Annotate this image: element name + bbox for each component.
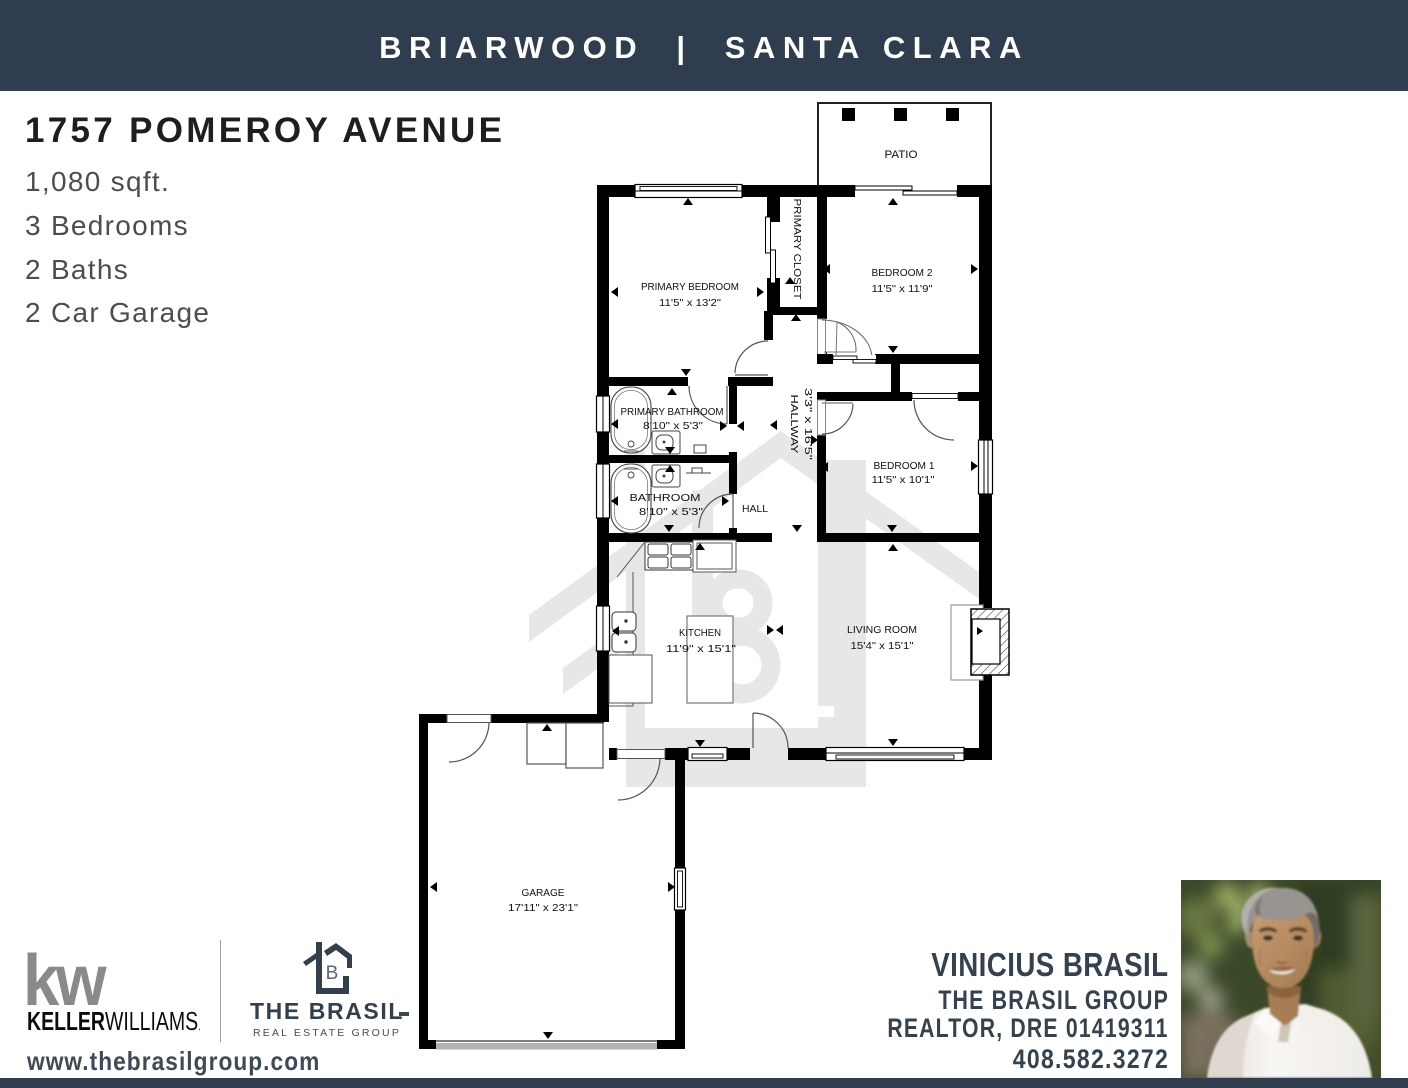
svg-text:PRIMARY CLOSET: PRIMARY CLOSET xyxy=(791,199,803,301)
svg-text:B: B xyxy=(326,963,339,984)
svg-text:11'5" x 13'2": 11'5" x 13'2" xyxy=(659,297,721,309)
svg-text:LIVING ROOM: LIVING ROOM xyxy=(847,624,917,636)
svg-text:KITCHEN: KITCHEN xyxy=(679,627,721,639)
svg-text:3'3" x 16'5": 3'3" x 16'5" xyxy=(802,388,814,460)
svg-text:PRIMARY BATHROOM: PRIMARY BATHROOM xyxy=(621,406,724,418)
svg-text:PRIMARY BEDROOM: PRIMARY BEDROOM xyxy=(641,281,739,293)
svg-text:BATHROOM: BATHROOM xyxy=(630,492,701,504)
svg-text:8'10" x 5'3": 8'10" x 5'3" xyxy=(639,506,703,518)
svg-text:17'11" x 23'1": 17'11" x 23'1" xyxy=(508,902,578,914)
svg-text:11'5" x 11'9": 11'5" x 11'9" xyxy=(872,283,933,295)
svg-text:GARAGE: GARAGE xyxy=(522,887,565,899)
svg-text:PATIO: PATIO xyxy=(885,149,918,161)
svg-text:BEDROOM 2: BEDROOM 2 xyxy=(872,267,933,279)
svg-text:15'4" x 15'1": 15'4" x 15'1" xyxy=(851,640,914,652)
svg-text:11'9" x 15'1": 11'9" x 15'1" xyxy=(666,643,736,655)
svg-text:11'5" x 10'1": 11'5" x 10'1" xyxy=(872,474,935,486)
svg-text:HALL: HALL xyxy=(742,503,768,515)
svg-text:HALLWAY: HALLWAY xyxy=(788,395,800,454)
svg-text:8'10" x 5'3": 8'10" x 5'3" xyxy=(643,420,703,432)
svg-text:BEDROOM 1: BEDROOM 1 xyxy=(874,460,935,472)
